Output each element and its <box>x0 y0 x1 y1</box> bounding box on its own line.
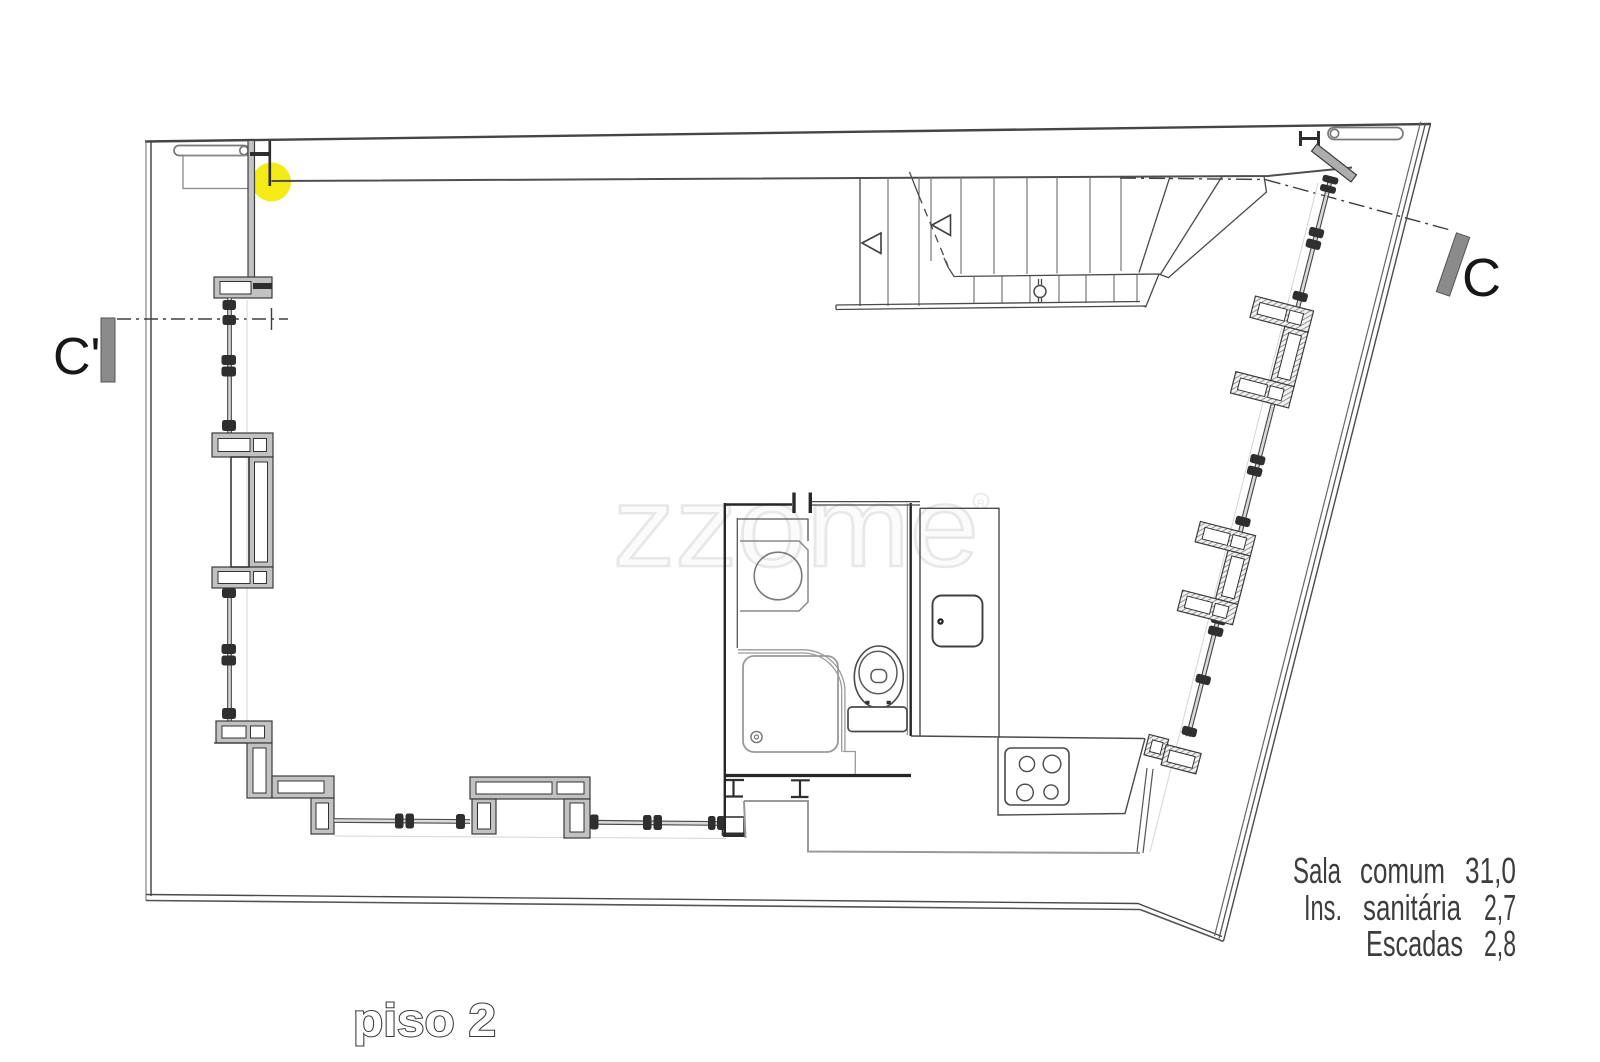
svg-text:piso 2: piso 2 <box>353 994 496 1046</box>
svg-text:comum: comum <box>1360 850 1445 891</box>
svg-text:C: C <box>1462 248 1501 308</box>
svg-text:sanitária: sanitária <box>1363 887 1462 928</box>
svg-text:31,0: 31,0 <box>1465 850 1516 891</box>
svg-text:Escadas: Escadas <box>1366 923 1463 964</box>
svg-text:C': C' <box>53 328 100 386</box>
svg-text:zzome: zzome <box>613 464 979 591</box>
svg-text:2,7: 2,7 <box>1484 887 1516 928</box>
svg-text:Ins.: Ins. <box>1304 887 1342 928</box>
svg-text:2,8: 2,8 <box>1484 923 1516 964</box>
svg-text:Sala: Sala <box>1293 850 1342 891</box>
